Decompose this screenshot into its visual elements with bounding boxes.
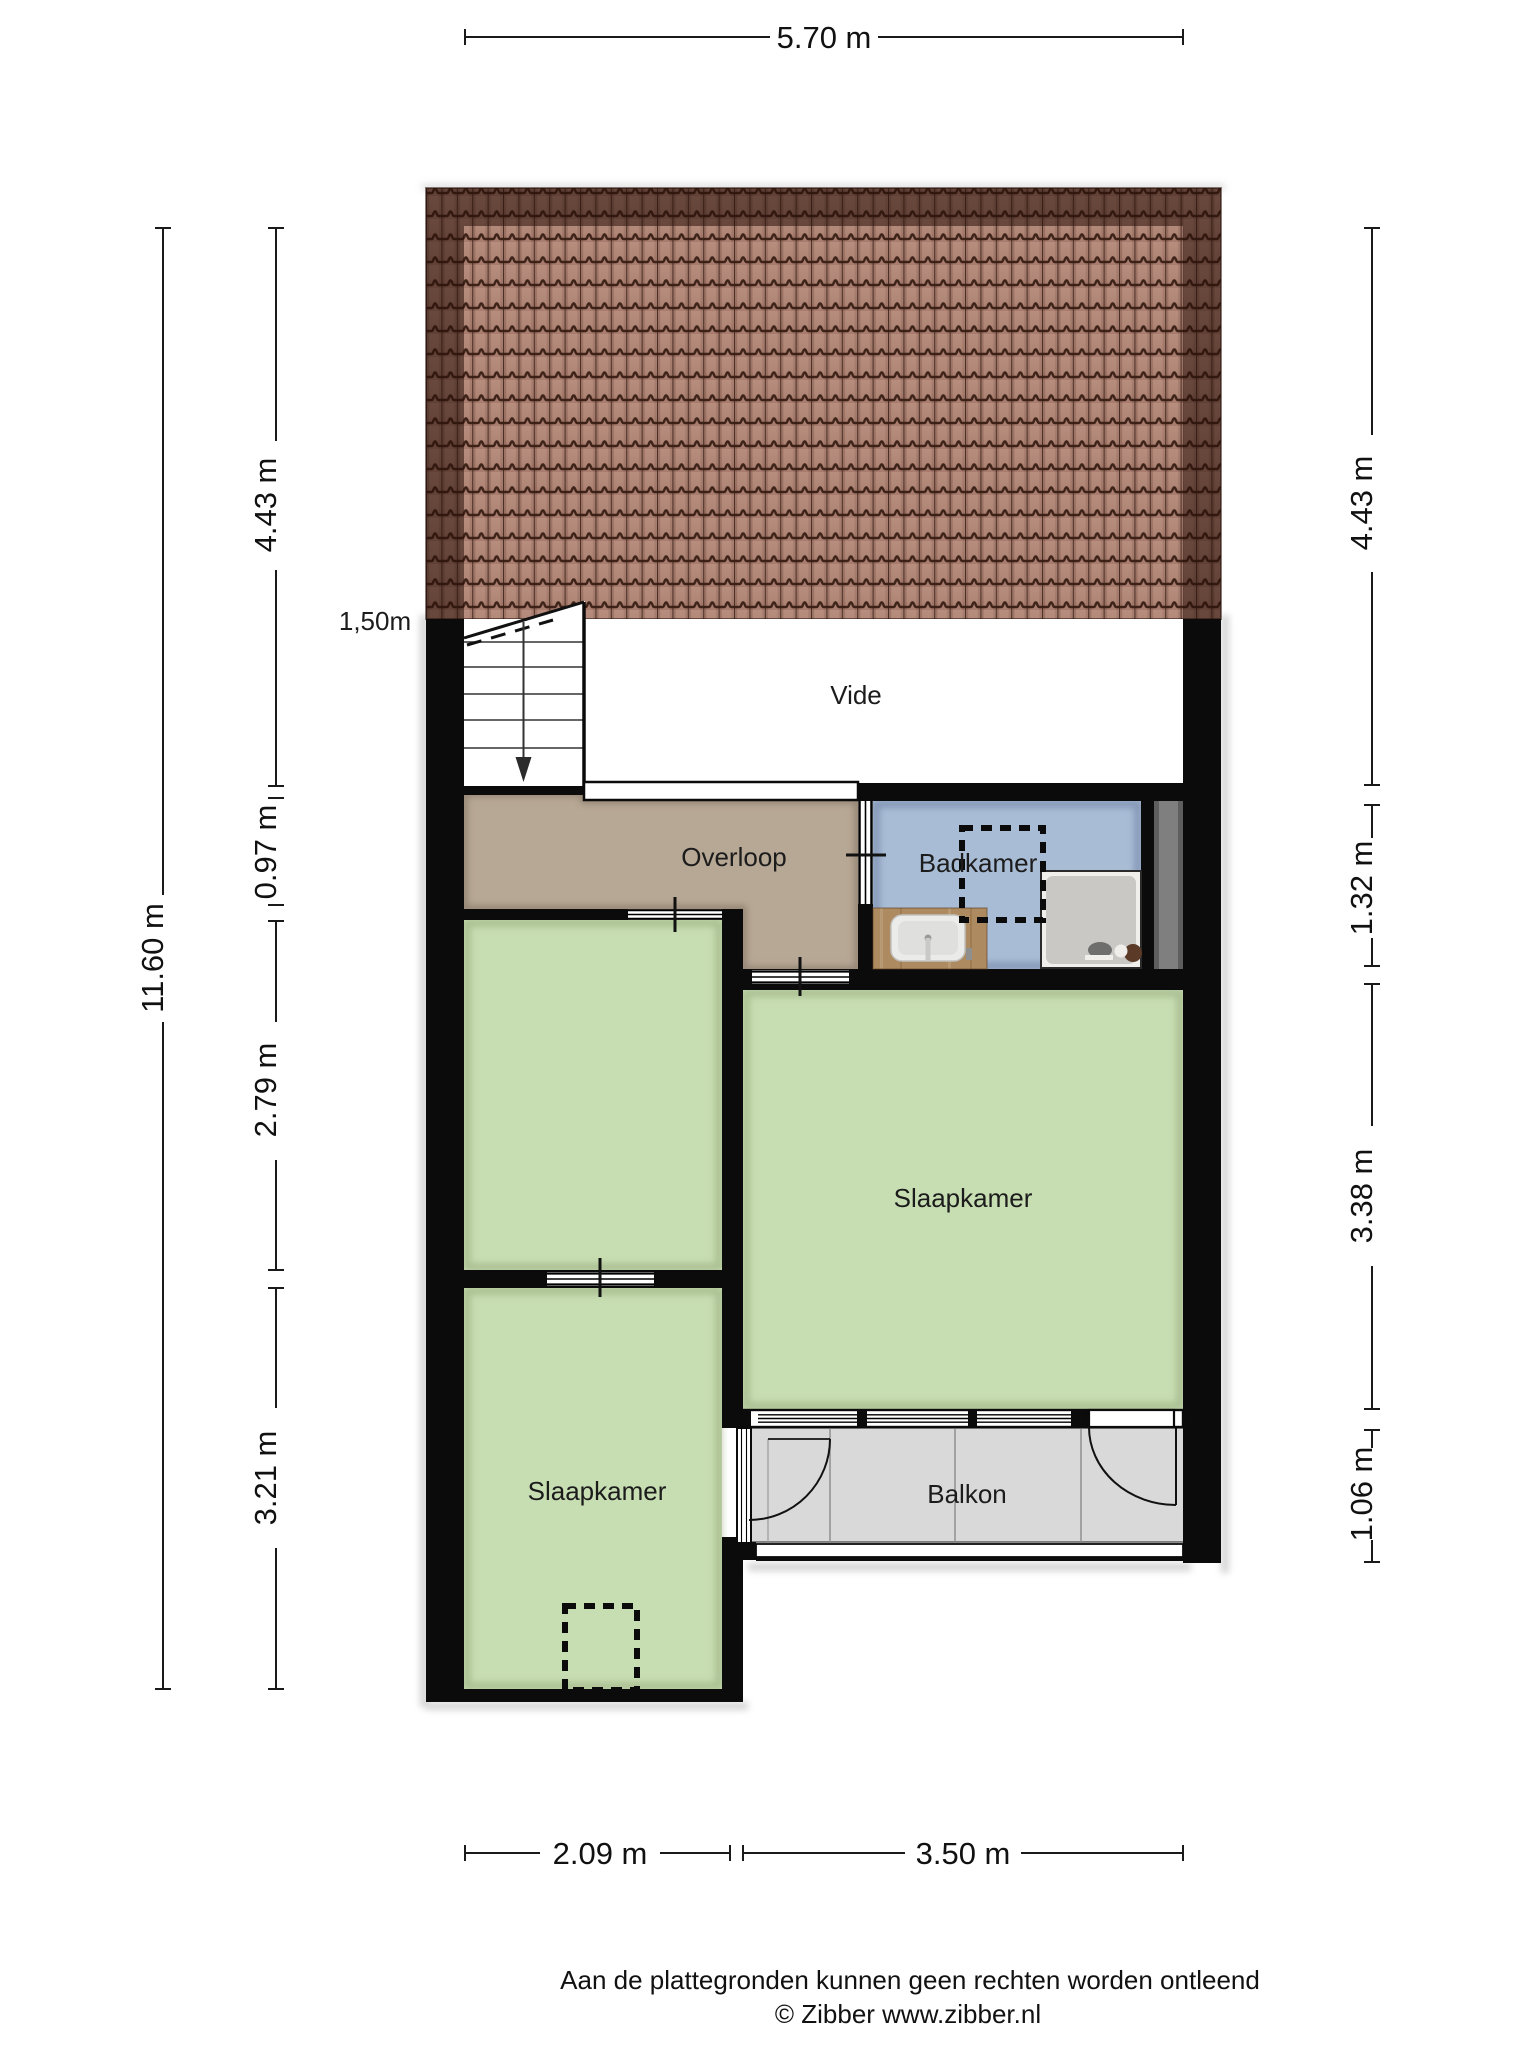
svg-text:2.79 m: 2.79 m	[248, 1043, 283, 1138]
svg-text:Slaapkamer: Slaapkamer	[528, 1476, 667, 1506]
svg-text:11.60 m: 11.60 m	[135, 903, 170, 1013]
svg-text:Aan de plattegronden kunnen ge: Aan de plattegronden kunnen geen rechten…	[560, 1965, 1260, 1995]
svg-text:2.09 m: 2.09 m	[553, 1836, 648, 1871]
svg-text:Badkamer: Badkamer	[919, 848, 1038, 878]
svg-text:Balkon: Balkon	[927, 1479, 1007, 1509]
svg-text:1,50m: 1,50m	[339, 606, 411, 636]
svg-text:3.50 m: 3.50 m	[916, 1836, 1011, 1871]
svg-text:4.43 m: 4.43 m	[1344, 456, 1379, 551]
svg-text:0.97 m: 0.97 m	[248, 805, 283, 900]
svg-text:© Zibber www.zibber.nl: © Zibber www.zibber.nl	[775, 1999, 1041, 2029]
svg-text:Slaapkamer: Slaapkamer	[894, 1183, 1033, 1213]
svg-text:1.06 m: 1.06 m	[1344, 1447, 1379, 1542]
svg-text:Vide: Vide	[830, 680, 882, 710]
svg-text:Overloop: Overloop	[681, 842, 787, 872]
svg-text:4.43 m: 4.43 m	[248, 458, 283, 553]
svg-text:1.32 m: 1.32 m	[1344, 841, 1379, 936]
svg-text:3.21 m: 3.21 m	[248, 1431, 283, 1526]
svg-text:3.38 m: 3.38 m	[1344, 1149, 1379, 1244]
svg-text:5.70 m: 5.70 m	[777, 20, 872, 55]
